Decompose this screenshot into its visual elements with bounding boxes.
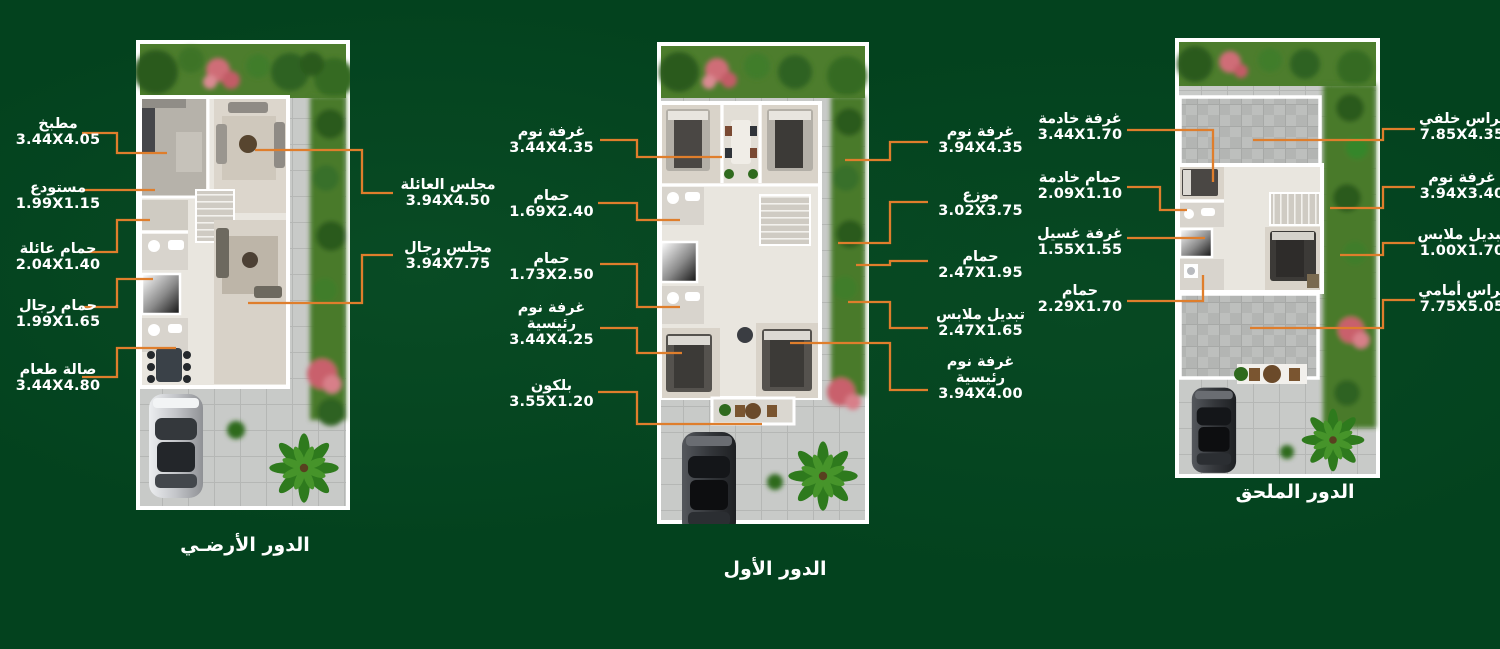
balcony-icon (712, 398, 794, 424)
room-name: غرفة نوم (1412, 170, 1500, 186)
room-name: مجلس العائلة (393, 177, 503, 193)
building-footprint (1178, 165, 1322, 292)
room-dims: 2.04X1.40 (8, 257, 108, 274)
room-label-laundry: غرفة غسيل 1.55X1.55 (1030, 226, 1130, 259)
car-icon (682, 432, 736, 524)
room-label-men-bath: حمام رجال 1.99X1.65 (8, 298, 108, 331)
room-dims: 3.94X4.00 (928, 386, 1033, 403)
room-dims: 1.69X2.40 (503, 204, 600, 221)
room-name: حمام رجال (8, 298, 108, 314)
room-dims: 3.44X4.25 (503, 332, 600, 349)
room-label-maid-room: غرفة خادمة 3.44X1.70 (1030, 111, 1130, 144)
room-name: غرفة نوم (928, 124, 1033, 140)
room-dims: 3.94X7.75 (393, 256, 503, 273)
room-dims: 3.44X4.05 (8, 132, 108, 149)
room-label-men-majlis: مجلس رجال 3.94X7.75 (393, 240, 503, 273)
room-name: بلكون (503, 378, 600, 394)
room-label-hall: موزع 3.02X3.75 (928, 187, 1033, 220)
floor-title-annex: الدور الملحق (1195, 481, 1395, 503)
room-label-back-terrace: تراس خلفي 7.85X4.35 (1412, 111, 1500, 144)
garden-hedge-right-icon (827, 96, 865, 410)
room-name: حمام (928, 249, 1033, 265)
room-label-master-bedroom: غرفة نوم رئيسية 3.94X4.00 (928, 354, 1033, 403)
room-label-balcony: بلكون 3.55X1.20 (503, 378, 600, 411)
palm-tree-icon (269, 433, 338, 502)
room-name: غرفة نوم (503, 124, 600, 140)
room-label-bedroom: غرفة نوم 3.44X4.35 (503, 124, 600, 157)
room-dims: 3.94X3.40 (1412, 186, 1500, 203)
room-label-family-majlis: مجلس العائلة 3.94X4.50 (393, 177, 503, 210)
room-name: غرفة خادمة (1030, 111, 1130, 127)
room-dims: 2.29X1.70 (1030, 299, 1130, 316)
room-dims: 3.44X1.70 (1030, 127, 1130, 144)
room-name: غرفة نوم رئيسية (928, 354, 1033, 386)
room-dims: 2.47X1.65 (928, 323, 1033, 340)
room-label-bedroom: غرفة نوم 3.94X3.40 (1412, 170, 1500, 203)
room-dims: 3.94X4.35 (928, 140, 1033, 157)
garden-hedge-right-icon (1323, 84, 1376, 428)
outdoor-seating-icon (1234, 364, 1307, 384)
room-label-bath: حمام 2.47X1.95 (928, 249, 1033, 282)
room-name: مطبخ (8, 116, 108, 132)
room-dims: 3.55X1.20 (503, 394, 600, 411)
room-dims: 2.47X1.95 (928, 265, 1033, 282)
room-label-dressing: تبديل ملابس 2.47X1.65 (928, 307, 1033, 340)
room-name: حمام خادمة (1030, 170, 1130, 186)
palm-tree-icon (1302, 409, 1365, 472)
room-label-master-bedroom: غرفة نوم رئيسية 3.44X4.25 (503, 300, 600, 349)
room-dims: 3.02X3.75 (928, 203, 1033, 220)
room-dims: 3.44X4.35 (503, 140, 600, 157)
room-name: تراس أمامي (1412, 283, 1500, 299)
ground-floor-plan-rendering (136, 40, 350, 510)
room-name: مستودع (8, 180, 108, 196)
stairs-icon (1270, 193, 1320, 225)
room-dims: 7.85X4.35 (1412, 127, 1500, 144)
car-icon (149, 394, 203, 498)
room-label-bath: حمام 1.73X2.50 (503, 251, 600, 284)
room-dims: 2.09X1.10 (1030, 186, 1130, 203)
room-dims: 3.44X4.80 (8, 378, 108, 395)
room-dims: 1.99X1.65 (8, 314, 108, 331)
palm-tree-icon (788, 441, 857, 510)
room-name: حمام (503, 188, 600, 204)
room-label-bath: حمام 1.69X2.40 (503, 188, 600, 221)
brochure-canvas: مطبخ 3.44X4.05 مستودع 1.99X1.15 حمام عائ… (0, 0, 1500, 649)
room-dims: 1.99X1.15 (8, 196, 108, 213)
room-label-kitchen: مطبخ 3.44X4.05 (8, 116, 108, 149)
room-name: حمام عائلة (8, 241, 108, 257)
room-dims: 7.75X5.05 (1412, 299, 1500, 316)
building-footprint (140, 97, 288, 387)
dining-table-icon (147, 348, 191, 383)
room-name: تبديل ملابس (1412, 227, 1500, 243)
building-footprint (660, 103, 820, 398)
room-label-front-terrace: تراس أمامي 7.75X5.05 (1412, 283, 1500, 316)
floor-title-first: الدور الأول (675, 558, 875, 580)
stairs-icon (760, 195, 810, 245)
room-label-bath: حمام 2.29X1.70 (1030, 283, 1130, 316)
room-label-dressing: تبديل ملابس 1.00X1.70 (1412, 227, 1500, 260)
room-label-family-bath: حمام عائلة 2.04X1.40 (8, 241, 108, 274)
room-name: مجلس رجال (393, 240, 503, 256)
room-label-maid-bath: حمام خادمة 2.09X1.10 (1030, 170, 1130, 203)
room-name: حمام (1030, 283, 1130, 299)
first-floor-plan-rendering (657, 42, 869, 524)
room-name: غرفة غسيل (1030, 226, 1130, 242)
annex-floor-plan-rendering (1175, 38, 1380, 478)
room-dims: 1.73X2.50 (503, 267, 600, 284)
room-name: غرفة نوم رئيسية (503, 300, 600, 332)
car-icon (1192, 388, 1236, 473)
room-name: حمام (503, 251, 600, 267)
room-dims: 3.94X4.50 (393, 193, 503, 210)
room-name: تراس خلفي (1412, 111, 1500, 127)
room-dims: 1.00X1.70 (1412, 243, 1500, 260)
room-name: موزع (928, 187, 1033, 203)
garden-hedge-right-icon (307, 96, 346, 426)
room-name: تبديل ملابس (928, 307, 1033, 323)
room-label-storage: مستودع 1.99X1.15 (8, 180, 108, 213)
room-name: صالة طعام (8, 362, 108, 378)
room-label-bedroom: غرفة نوم 3.94X4.35 (928, 124, 1033, 157)
room-label-dining: صالة طعام 3.44X4.80 (8, 362, 108, 395)
floor-title-ground: الدور الأرضـي (145, 534, 345, 556)
room-dims: 1.55X1.55 (1030, 242, 1130, 259)
